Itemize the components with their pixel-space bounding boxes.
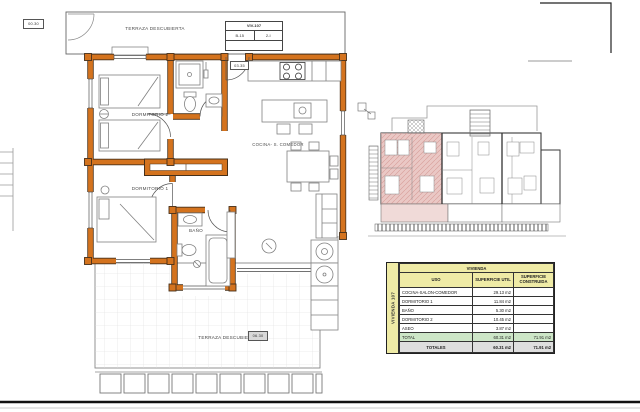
row-construida [514,324,554,333]
row-uso: COCINA-SALON-COMEDOR [400,288,473,297]
area-table: VIVIENDA 107 VIVIENDA USO SUPERFICIE UTI… [386,262,555,354]
level-tag-top-left: 00.30 [23,19,44,29]
table-row: ASEO 3.87 m2 [400,324,554,333]
terrace-top-label: TERRAZA DESCUBIERTA [110,26,200,31]
row-uso: BAÑO [400,306,473,315]
bedroom1-label: DORMITORIO 1 [125,186,175,191]
kitchen-label: COCINA- S. COMEDOR [243,143,313,148]
row-construida [514,288,554,297]
table-row: BAÑO 5.30 m2 [400,306,554,315]
total-util: 60.31 m2 [473,333,514,342]
bath-label: BAÑO [181,228,211,233]
table-row: COCINA-SALON-COMEDOR 29.13 m2 [400,288,554,297]
key-plan-terrace-edge [375,224,548,231]
area-table-side-label: VIVIENDA 107 [390,292,395,324]
row-construida [514,306,554,315]
table-row: DORMITORIO 2 10.45 m2 [400,315,554,324]
table-row: DORMITORIO 1 11.84 m2 [400,297,554,306]
total-label: TOTAL [400,333,473,342]
level-tag-terrace: 06.30 [248,331,268,341]
total-construida: 71.91 m2 [514,333,554,342]
row-util: 29.13 m2 [473,288,514,297]
table-total-row: TOTAL 60.31 m2 71.91 m2 [400,333,554,342]
totals-construida: 71.91 m2 [514,342,554,353]
level-tag-entrance: 03.35 [230,61,249,70]
drawing-sheet: TERRAZA DESCUBIERTA TERRAZA DESCUBIERTA … [0,0,640,412]
bedroom2-label: DORMITORIO 2 [125,112,175,117]
planter-row [100,374,322,393]
upper-terrace-outline [66,12,345,55]
totals-label: TOTALES [400,342,473,353]
unit-info-box: VIV-107 B-15 2-I [225,21,283,51]
unit-info-cell-right: 2-I [255,31,283,40]
table-totals-row: TOTALES 60.31 m2 71.91 m2 [400,342,554,353]
area-table-side-strip: VIVIENDA 107 [387,263,399,353]
col-header-construida: SUPERFICIE CONSTRUIDA [514,273,554,288]
row-construida [514,315,554,324]
key-plan-stairs [470,110,490,136]
row-construida [514,297,554,306]
row-util: 3.87 m2 [473,324,514,333]
unit-info-cell-left: B-15 [226,31,255,40]
row-uso: DORMITORIO 2 [400,315,473,324]
col-header-util: SUPERFICIE UTIL [473,273,514,288]
row-uso: DORMITORIO 1 [400,297,473,306]
row-util: 11.84 m2 [473,297,514,306]
col-header-uso: USO [400,273,473,288]
row-uso: ASEO [400,324,473,333]
row-util: 10.45 m2 [473,315,514,324]
unit-info-title: VIV-107 [226,22,282,31]
row-util: 5.30 m2 [473,306,514,315]
key-plan [358,103,566,236]
table-title: VIVIENDA [400,264,554,273]
totals-util: 60.31 m2 [473,342,514,353]
